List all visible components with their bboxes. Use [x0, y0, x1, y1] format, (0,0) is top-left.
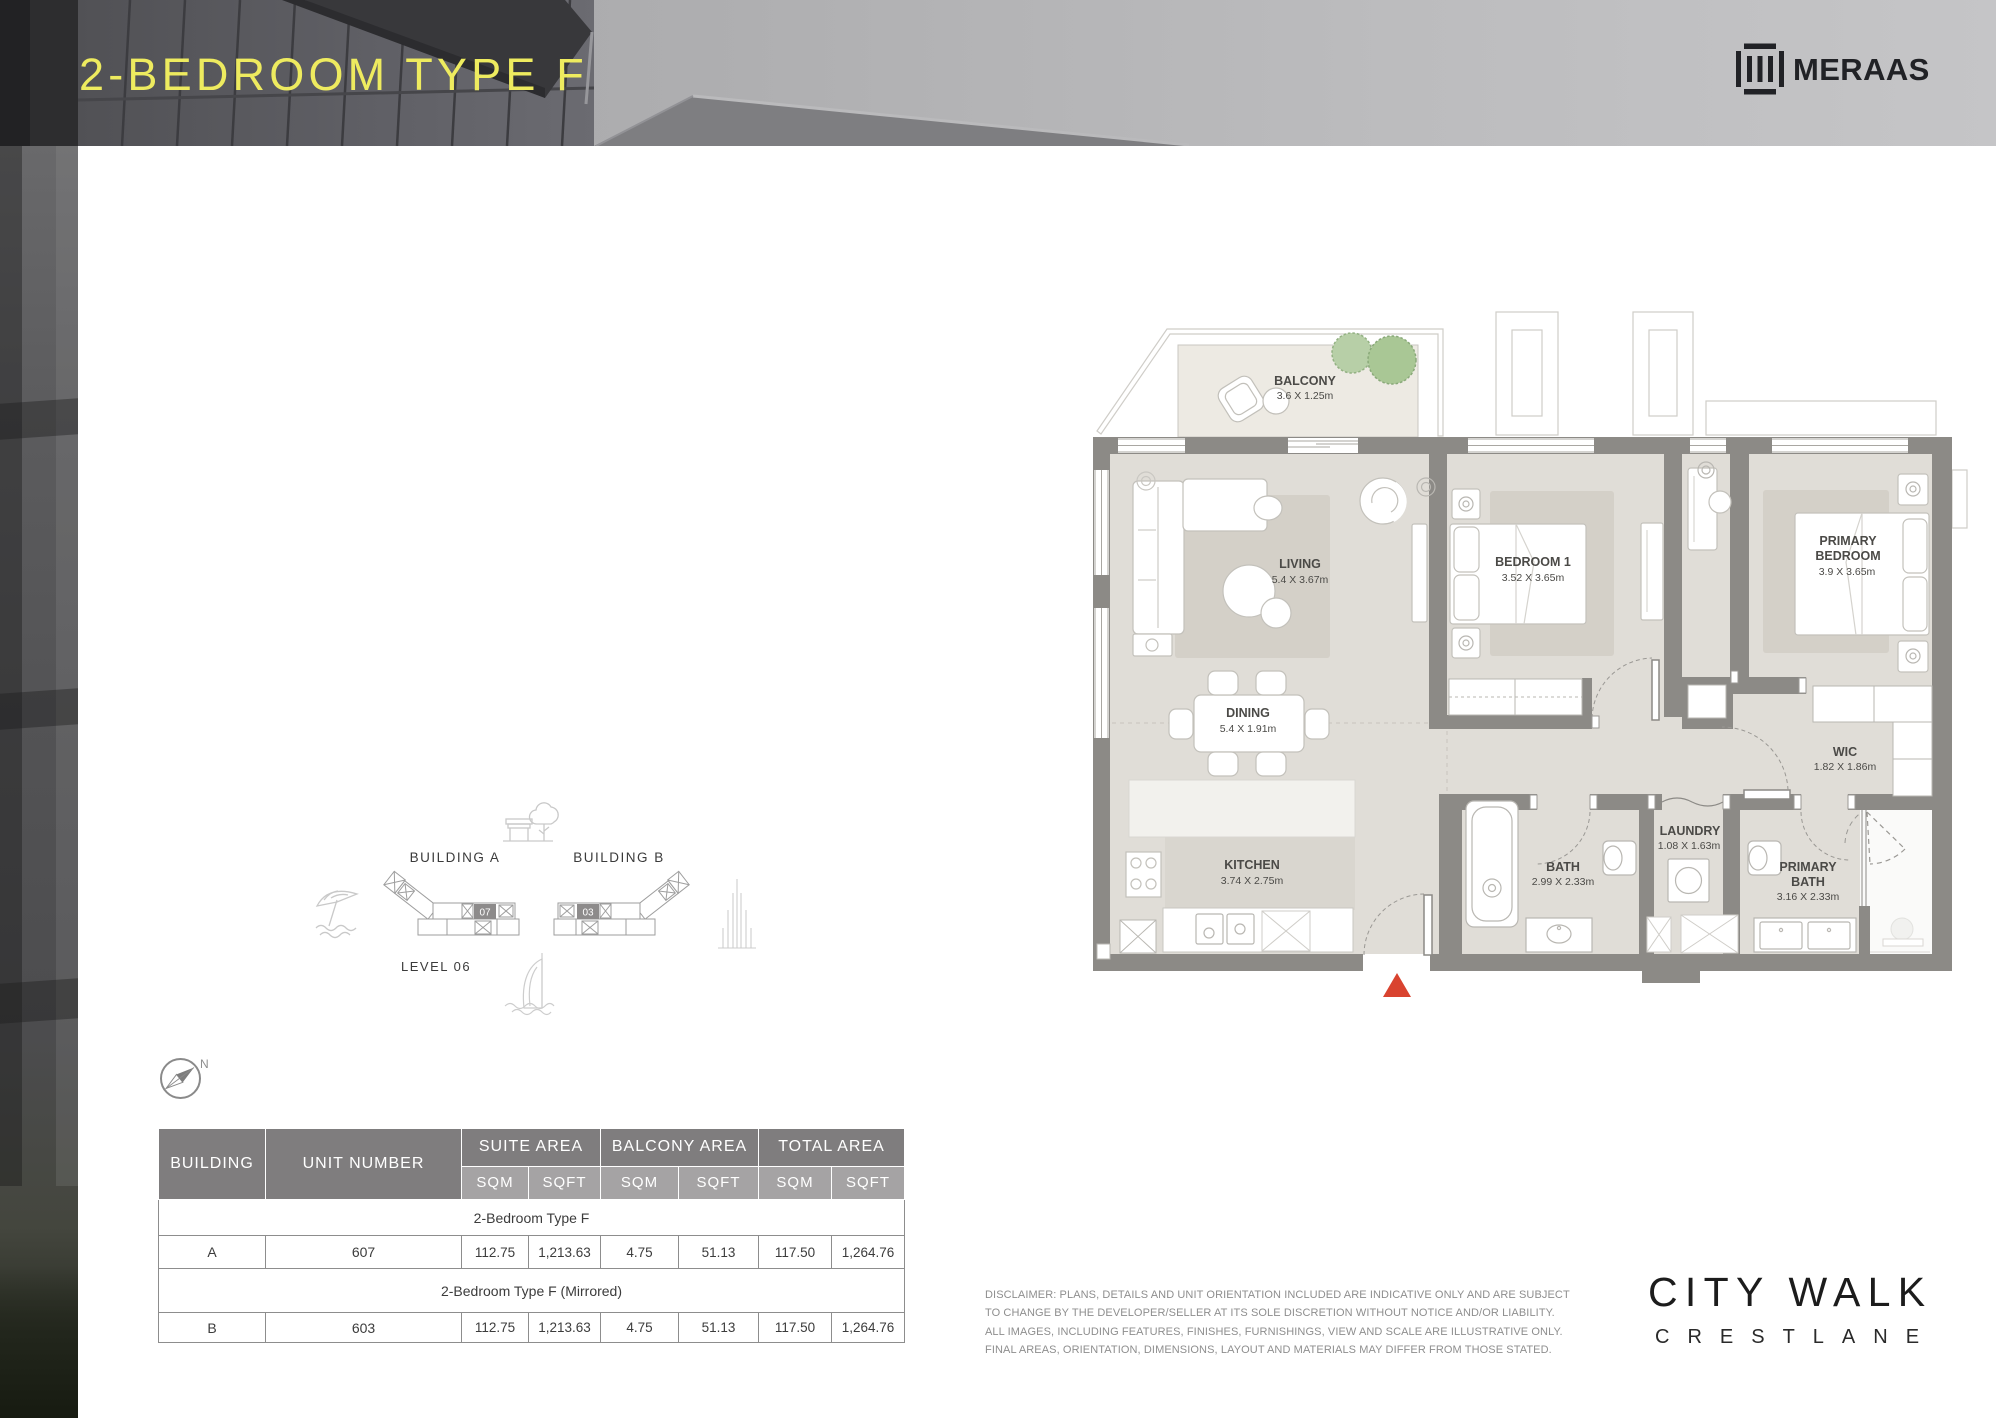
svg-text:3.6 X 1.25m: 3.6 X 1.25m	[1277, 390, 1334, 402]
svg-text:BUILDING B: BUILDING B	[573, 850, 665, 865]
svg-text:BALCONY: BALCONY	[1274, 374, 1336, 388]
svg-text:3.16 X 2.33m: 3.16 X 2.33m	[1777, 891, 1840, 903]
svg-text:LEVEL 06: LEVEL 06	[401, 959, 471, 974]
svg-text:BATH: BATH	[1791, 875, 1825, 889]
svg-text:WIC: WIC	[1833, 745, 1857, 759]
svg-text:BATH: BATH	[1546, 860, 1580, 874]
svg-text:2.99 X 2.33m: 2.99 X 2.33m	[1532, 876, 1595, 888]
svg-text:1.82 X 1.86m: 1.82 X 1.86m	[1814, 761, 1877, 773]
svg-text:LIVING: LIVING	[1279, 557, 1321, 571]
svg-text:KITCHEN: KITCHEN	[1224, 858, 1280, 872]
svg-text:1.08 X 1.63m: 1.08 X 1.63m	[1658, 840, 1721, 852]
svg-text:03: 03	[582, 908, 594, 919]
svg-text:LAUNDRY: LAUNDRY	[1660, 824, 1721, 838]
svg-text:5.4 X 3.67m: 5.4 X 3.67m	[1272, 574, 1329, 586]
svg-text:PRIMARY: PRIMARY	[1819, 534, 1877, 548]
svg-text:MERAAS: MERAAS	[1793, 52, 1930, 87]
svg-text:BEDROOM: BEDROOM	[1815, 549, 1880, 563]
svg-text:07: 07	[479, 908, 491, 919]
svg-text:BEDROOM 1: BEDROOM 1	[1495, 555, 1571, 569]
svg-text:5.4 X 1.91m: 5.4 X 1.91m	[1220, 723, 1277, 735]
svg-text:DINING: DINING	[1226, 706, 1270, 720]
svg-text:3.9 X 3.65m: 3.9 X 3.65m	[1819, 566, 1876, 578]
svg-text:N: N	[200, 1057, 209, 1071]
svg-text:3.52 X 3.65m: 3.52 X 3.65m	[1502, 572, 1565, 584]
svg-text:3.74 X 2.75m: 3.74 X 2.75m	[1221, 875, 1284, 887]
svg-text:BUILDING A: BUILDING A	[410, 850, 501, 865]
svg-text:PRIMARY: PRIMARY	[1779, 860, 1837, 874]
